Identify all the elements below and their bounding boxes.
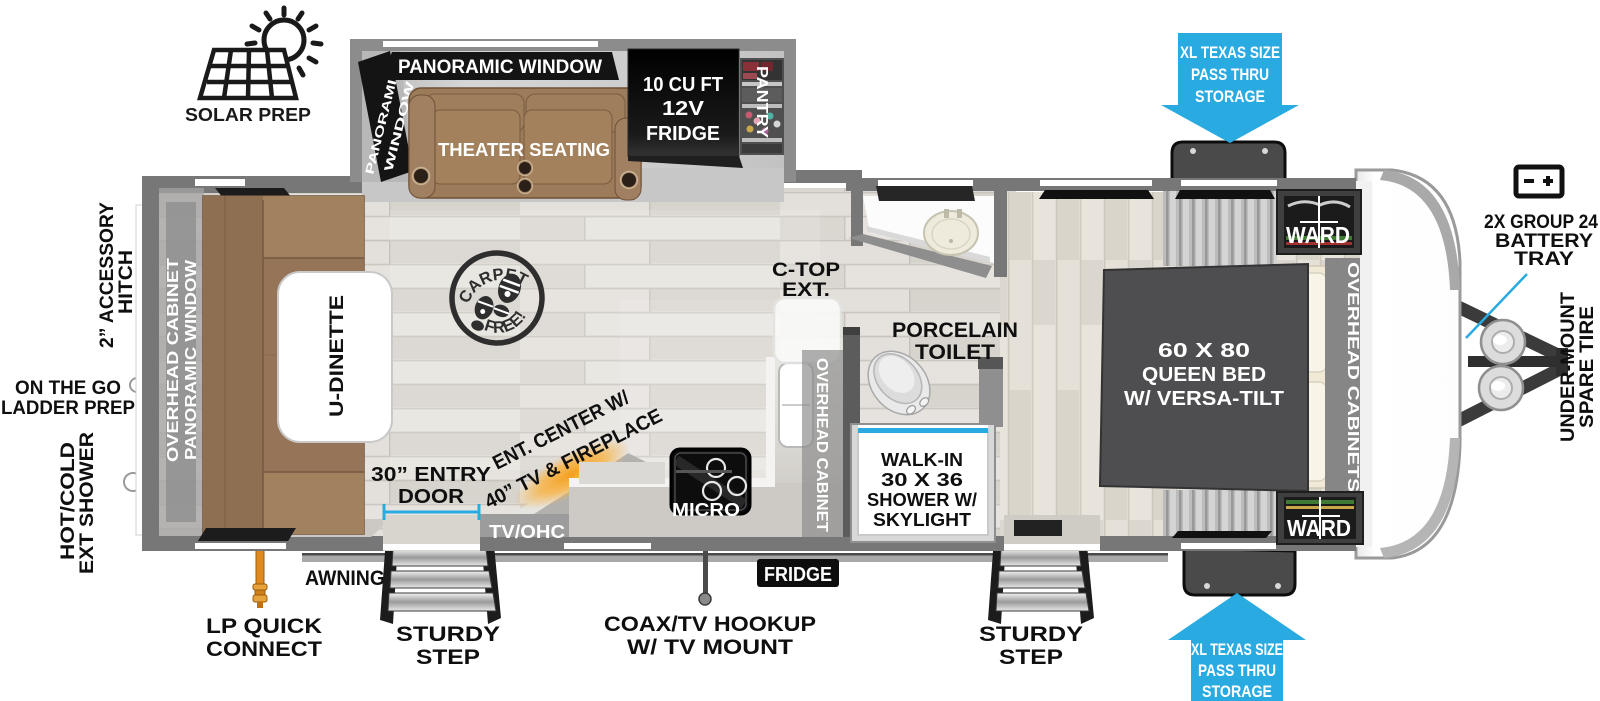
svg-text:W/ TV MOUNT: W/ TV MOUNT	[627, 636, 793, 659]
svg-text:60 X 80: 60 X 80	[1158, 340, 1250, 362]
svg-text:2X GROUP 24: 2X GROUP 24	[1484, 212, 1598, 233]
svg-text:OVERHEAD CABINET: OVERHEAD CABINET	[813, 358, 830, 533]
svg-text:DOOR: DOOR	[398, 486, 465, 508]
svg-text:PANTRY: PANTRY	[753, 66, 770, 139]
svg-text:PANORAMIC WINDOW: PANORAMIC WINDOW	[183, 260, 200, 460]
svg-text:LADDER PREP: LADDER PREP	[1, 398, 135, 419]
svg-text:THEATER SEATING: THEATER SEATING	[438, 140, 610, 160]
svg-text:CONNECT: CONNECT	[206, 638, 322, 661]
svg-text:QUEEN BED: QUEEN BED	[1142, 364, 1266, 386]
svg-text:30” ENTRY: 30” ENTRY	[371, 464, 492, 486]
svg-text:SKYLIGHT: SKYLIGHT	[873, 510, 971, 530]
svg-text:WALK-IN: WALK-IN	[881, 450, 963, 470]
svg-text:SHOWER W/: SHOWER W/	[867, 490, 977, 510]
svg-text:C-TOP: C-TOP	[772, 260, 840, 281]
svg-text:PASS THRU: PASS THRU	[1198, 662, 1276, 680]
svg-text:HITCH: HITCH	[116, 250, 137, 314]
svg-text:PORCELAIN: PORCELAIN	[892, 319, 1018, 342]
svg-text:ON THE GO: ON THE GO	[15, 378, 121, 399]
svg-text:TV/OHC: TV/OHC	[489, 522, 565, 542]
svg-text:EXT.: EXT.	[782, 280, 830, 301]
svg-text:SPARE TIRE: SPARE TIRE	[1577, 306, 1598, 428]
svg-text:U-DINETTE: U-DINETTE	[327, 295, 348, 417]
svg-text:OVERHEAD CABINETS: OVERHEAD CABINETS	[1344, 262, 1361, 492]
svg-text:2” ACCESSORY: 2” ACCESSORY	[97, 202, 118, 348]
svg-text:STORAGE: STORAGE	[1202, 683, 1272, 701]
svg-text:OVERHEAD CABINET: OVERHEAD CABINET	[165, 257, 182, 462]
svg-text:MICRO: MICRO	[672, 500, 740, 520]
svg-text:XL TEXAS SIZE: XL TEXAS SIZE	[1191, 641, 1283, 659]
svg-text:STORAGE: STORAGE	[1195, 88, 1265, 106]
svg-text:COAX/TV HOOKUP: COAX/TV HOOKUP	[604, 613, 816, 636]
svg-text:STURDY: STURDY	[396, 623, 500, 646]
svg-text:EXT SHOWER: EXT SHOWER	[77, 432, 98, 574]
svg-text:12V: 12V	[662, 98, 705, 120]
svg-text:10 CU FT: 10 CU FT	[643, 74, 723, 96]
svg-text:STURDY: STURDY	[979, 623, 1083, 646]
svg-text:FRIDGE: FRIDGE	[646, 123, 720, 145]
svg-text:UNDER-MOUNT: UNDER-MOUNT	[1558, 292, 1579, 442]
svg-text:HOT/COLD: HOT/COLD	[58, 442, 79, 560]
svg-text:PASS THRU: PASS THRU	[1191, 66, 1269, 84]
svg-text:FRIDGE: FRIDGE	[764, 564, 832, 586]
svg-text:WARD: WARD	[1287, 515, 1351, 541]
svg-text:AWNING: AWNING	[305, 567, 385, 590]
svg-text:STEP: STEP	[416, 646, 480, 669]
svg-text:TRAY: TRAY	[1514, 249, 1574, 270]
svg-text:W/ VERSA-TILT: W/ VERSA-TILT	[1124, 388, 1284, 410]
svg-text:XL TEXAS SIZE: XL TEXAS SIZE	[1180, 44, 1280, 62]
svg-text:LP QUICK: LP QUICK	[206, 615, 322, 638]
svg-text:30 X 36: 30 X 36	[881, 470, 963, 490]
svg-text:TOILET: TOILET	[915, 341, 995, 364]
svg-text:SOLAR PREP: SOLAR PREP	[185, 105, 311, 125]
svg-text:WARD: WARD	[1286, 222, 1350, 248]
svg-text:STEP: STEP	[999, 646, 1063, 669]
svg-text:PANORAMIC WINDOW: PANORAMIC WINDOW	[398, 57, 602, 78]
